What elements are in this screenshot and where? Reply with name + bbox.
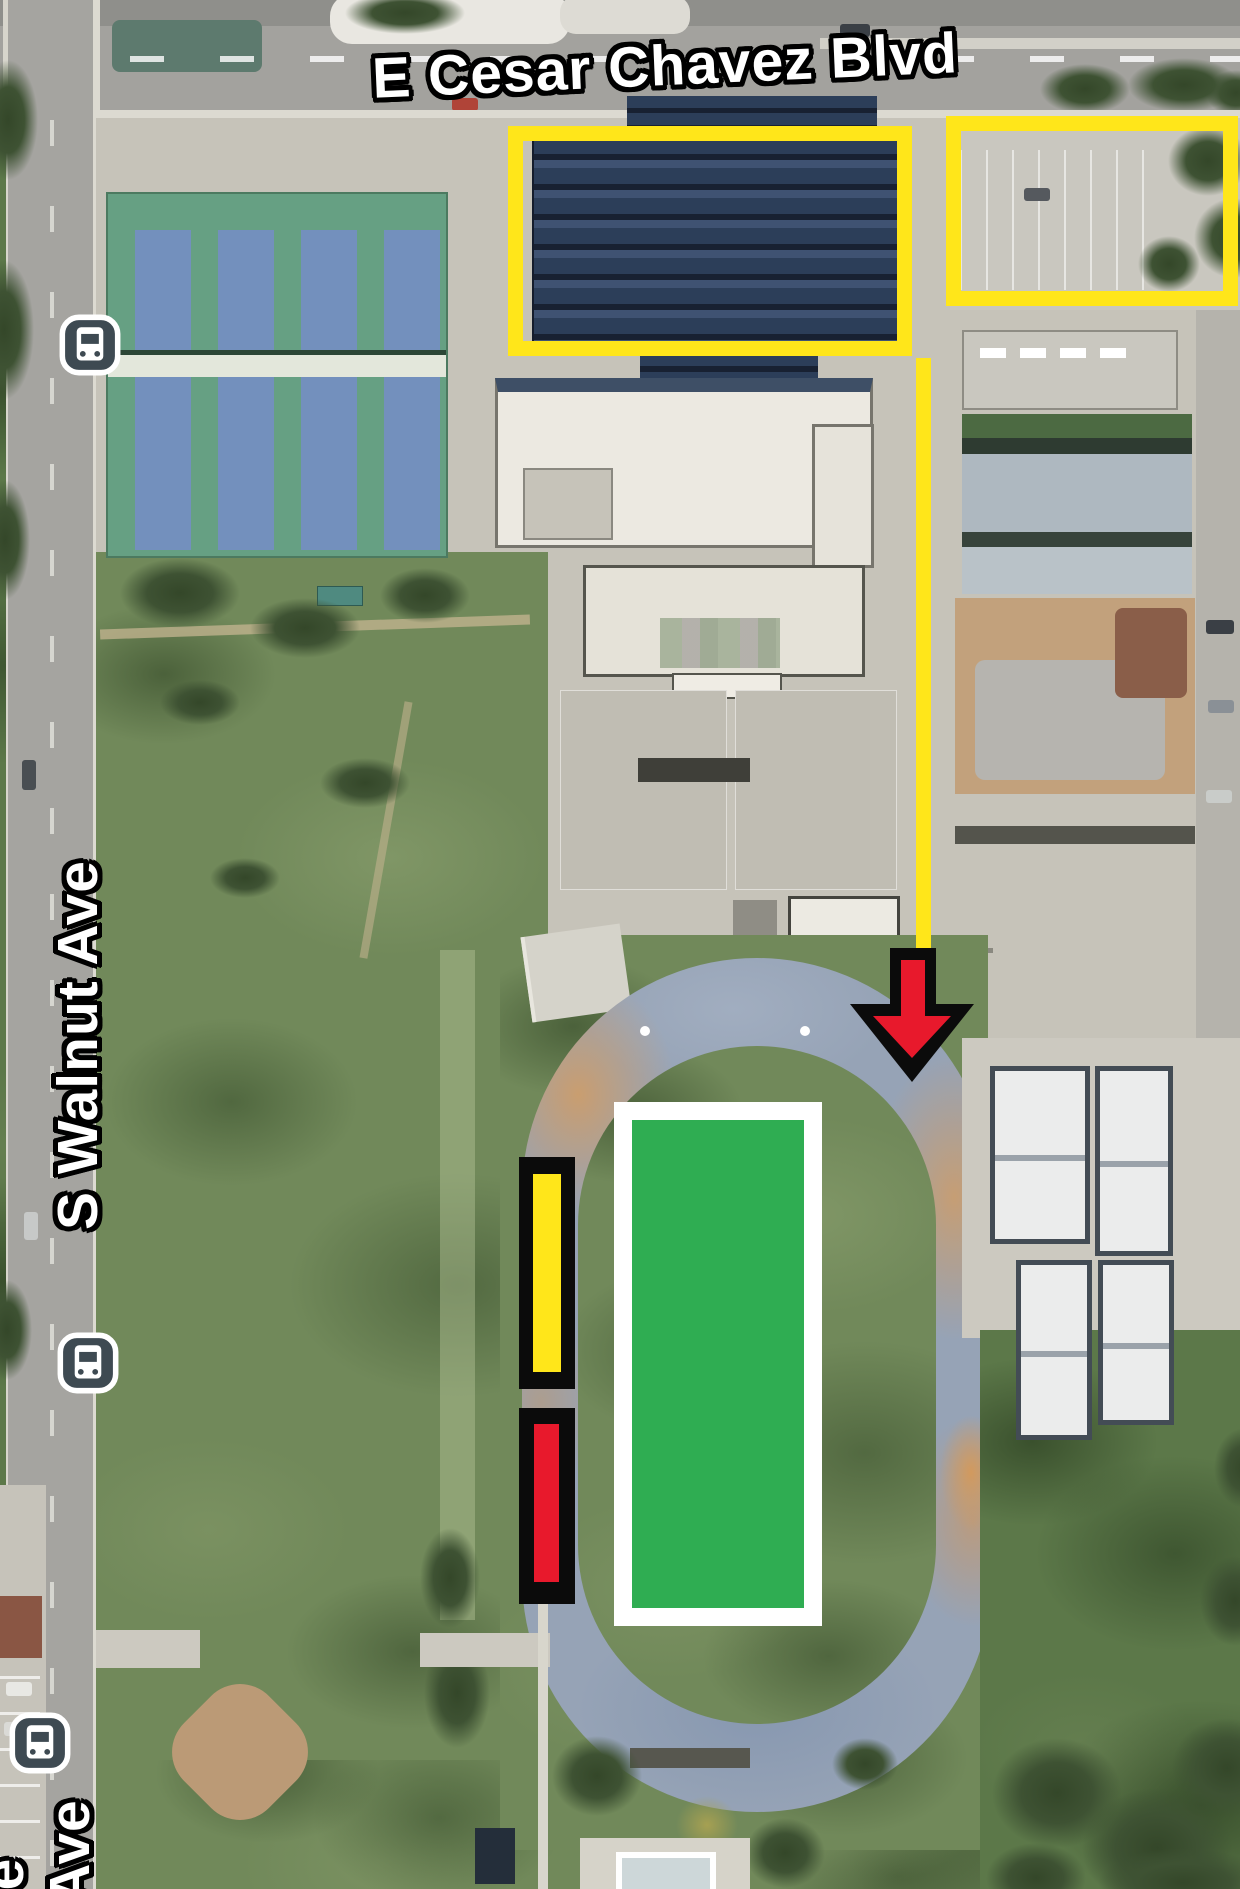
gate-post — [800, 1026, 810, 1036]
court-divider-path — [108, 355, 446, 377]
road-structure — [560, 0, 690, 34]
street-label-partial: e — [0, 1858, 37, 1889]
hedge — [962, 414, 1192, 438]
tree — [320, 758, 410, 808]
tree — [552, 1736, 642, 1816]
car — [1208, 700, 1234, 713]
tennis-court-row — [108, 377, 446, 550]
yellow-marker-bar — [519, 1157, 575, 1389]
tree — [250, 598, 360, 658]
car — [6, 1682, 32, 1696]
bus-stop-icon[interactable] — [9, 1712, 71, 1774]
tree — [1040, 64, 1130, 114]
gym-courtyard — [523, 468, 613, 540]
street-label-walnut: S Walnut Ave — [45, 860, 111, 1230]
drop-off-arrow — [846, 948, 978, 1084]
highlight-box-parking-structure — [508, 126, 912, 356]
shed-building — [1016, 1260, 1092, 1440]
shed-building — [1098, 1260, 1174, 1425]
red-marker-fill — [534, 1424, 559, 1582]
worn-strip — [440, 950, 475, 1620]
campus-entrance-path — [96, 1630, 200, 1668]
route-line — [916, 358, 931, 950]
rooftop-units — [660, 618, 780, 668]
storage-shed — [638, 758, 750, 782]
shed-building — [990, 1066, 1090, 1244]
brown-building — [0, 1596, 42, 1658]
yellow-marker-fill — [533, 1174, 561, 1372]
plaza-court — [735, 690, 897, 890]
shed-building — [1095, 1066, 1173, 1256]
tree — [160, 680, 240, 725]
tree — [210, 858, 280, 898]
satellite-map: E Cesar Chavez Blvd S Walnut Ave Ave e — [0, 0, 1240, 1889]
tennis-court-row — [108, 230, 446, 354]
classroom-building — [962, 330, 1178, 410]
tree — [380, 568, 470, 623]
right-access-road — [1196, 310, 1240, 1040]
construction-building — [1115, 608, 1187, 698]
canopy-building — [788, 896, 900, 940]
practice-field — [96, 552, 548, 1774]
tree — [120, 558, 240, 628]
fence-shadow — [955, 826, 1195, 844]
tree — [832, 1738, 898, 1790]
solar-canopy-lower — [640, 354, 818, 378]
car — [1206, 790, 1232, 803]
field-white-border — [614, 1102, 822, 1626]
highlight-box-overflow-lot — [946, 116, 1238, 306]
red-marker-bar — [519, 1408, 575, 1604]
turf-field — [632, 1120, 804, 1608]
gym-wing — [812, 424, 874, 568]
car — [24, 1212, 38, 1240]
plaza-court — [560, 690, 727, 890]
gate-post — [640, 1026, 650, 1036]
roof-marks — [980, 348, 1130, 358]
tree — [745, 1818, 825, 1888]
bus-stop-icon[interactable] — [57, 1332, 119, 1394]
solar-canopy-upper — [627, 96, 877, 130]
pool — [616, 1852, 716, 1889]
gate-structure — [630, 1748, 750, 1768]
street-label-ave: Ave — [37, 1799, 103, 1889]
top-road-median — [112, 20, 262, 72]
classroom-row — [962, 532, 1192, 594]
car — [1206, 620, 1234, 634]
bus-stop-icon[interactable] — [59, 314, 121, 376]
tennis-complex — [106, 192, 448, 558]
tree — [420, 1528, 480, 1628]
classroom-row — [962, 438, 1192, 532]
service-path — [420, 1633, 550, 1667]
dark-building — [475, 1828, 515, 1884]
car — [22, 760, 36, 790]
